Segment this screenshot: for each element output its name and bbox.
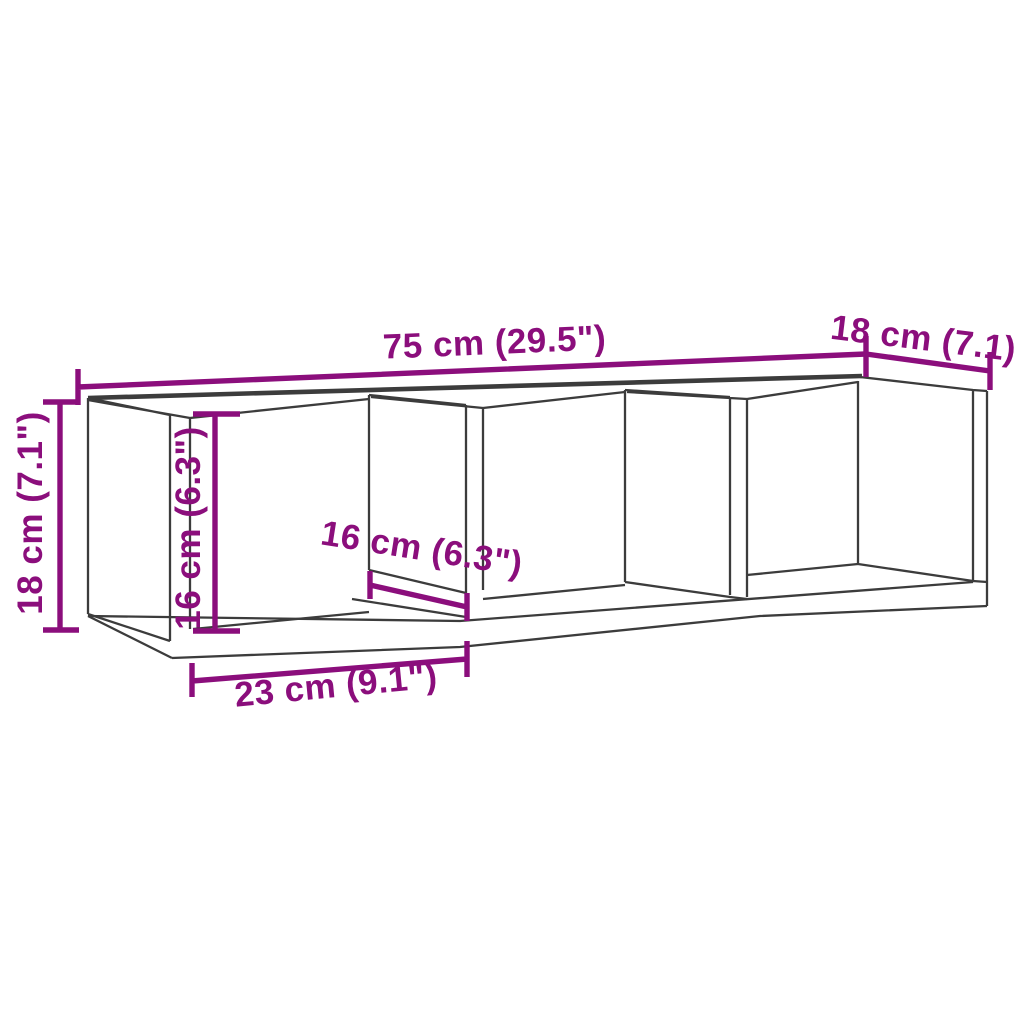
label-overall-height: 18 cm (7.1"): [11, 411, 50, 615]
label-interior-height: 16 cm (6.3"): [169, 426, 208, 630]
cabinet-wireframe: [88, 376, 987, 658]
shelf-dimension-drawing: 75 cm (29.5") 18 cm (7.1) 18 cm (7.1") 1…: [0, 0, 1024, 1024]
divider-panel-2: [625, 390, 747, 599]
dimension-line-interior-width: [370, 571, 467, 621]
dimension-diagram: 75 cm (29.5") 18 cm (7.1) 18 cm (7.1") 1…: [0, 0, 1024, 1024]
label-compartment-width: 23 cm (9.1"): [233, 656, 439, 714]
interior-edges: [190, 382, 858, 629]
label-interior-width: 16 cm (6.3"): [318, 513, 525, 583]
right-side-panel: [858, 377, 987, 606]
label-overall-width: 75 cm (29.5"): [382, 318, 607, 366]
